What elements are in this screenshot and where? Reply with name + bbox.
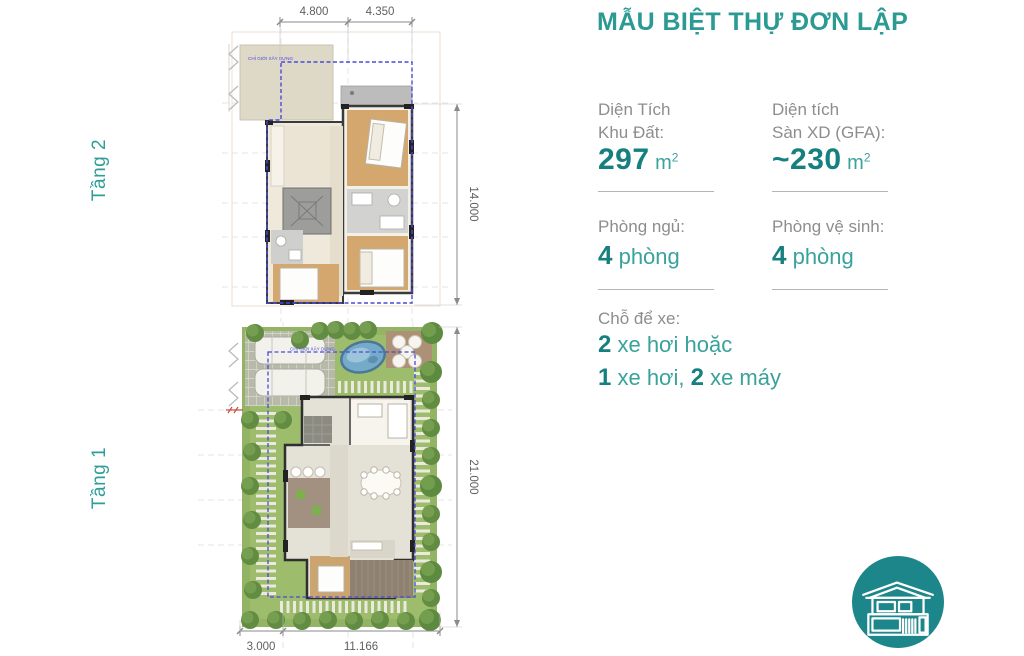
car	[255, 369, 325, 396]
divider	[598, 191, 714, 192]
floor-plan-level-1: CHỈ GIỚI XÂY DỰNG 21.000	[198, 321, 479, 653]
divider	[598, 289, 714, 290]
page-title: MẪU BIỆT THỰ ĐƠN LẬP	[597, 8, 917, 37]
dim-label-21000: 21.000	[467, 459, 479, 494]
dim-label-4800: 4.800	[300, 6, 329, 18]
dim-label-11166: 11.166	[344, 641, 378, 653]
boundary-note-l2: CHỈ GIỚI XÂY DỰNG	[248, 55, 293, 61]
floor-plan-level-2: CHỈ GIỚI XÂY DỰNG 4.800 4.350	[222, 6, 479, 322]
entry-mark	[226, 407, 243, 413]
brochure-page: CHỈ GIỚI XÂY DỰNG 4.800 4.350	[0, 0, 1024, 656]
dimension-right-l1	[439, 327, 462, 627]
dim-label-14000: 14.000	[467, 186, 479, 221]
land-area-label: Diện Tích Khu Đất:	[598, 99, 670, 145]
parking-option-1: 2 xe hơi hoặc	[598, 331, 732, 359]
villa-icon	[852, 556, 944, 648]
bathrooms-value: 4 phòng	[772, 240, 854, 271]
dim-label-3000: 3.000	[247, 641, 276, 653]
gfa-value: ~230 m2	[772, 143, 871, 177]
dimension-right-l2	[414, 104, 462, 305]
bedrooms-label: Phòng ngủ:	[598, 216, 685, 239]
bedrooms-value: 4 phòng	[598, 240, 680, 271]
floor-label-tang-2: Tầng 2	[89, 110, 111, 230]
gfa-label: Diện tích Sàn XD (GFA):	[772, 99, 885, 145]
boundary-note-l1: CHỈ GIỚI XÂY DỰNG	[290, 346, 335, 352]
floor-label-tang-1: Tầng 1	[89, 418, 111, 538]
break-marks	[229, 44, 238, 112]
parking-area	[245, 331, 335, 406]
bathrooms-label: Phòng vệ sinh:	[772, 216, 884, 239]
parking-label: Chỗ để xe:	[598, 308, 680, 331]
dim-label-4350: 4.350	[366, 6, 395, 18]
land-area-value: 297 m2	[598, 143, 678, 177]
break-marks-l1	[229, 343, 238, 406]
divider	[772, 191, 888, 192]
villa-house-glyph	[852, 556, 944, 648]
parking-option-2: 1 xe hơi, 2 xe máy	[598, 364, 781, 392]
divider	[772, 289, 888, 290]
